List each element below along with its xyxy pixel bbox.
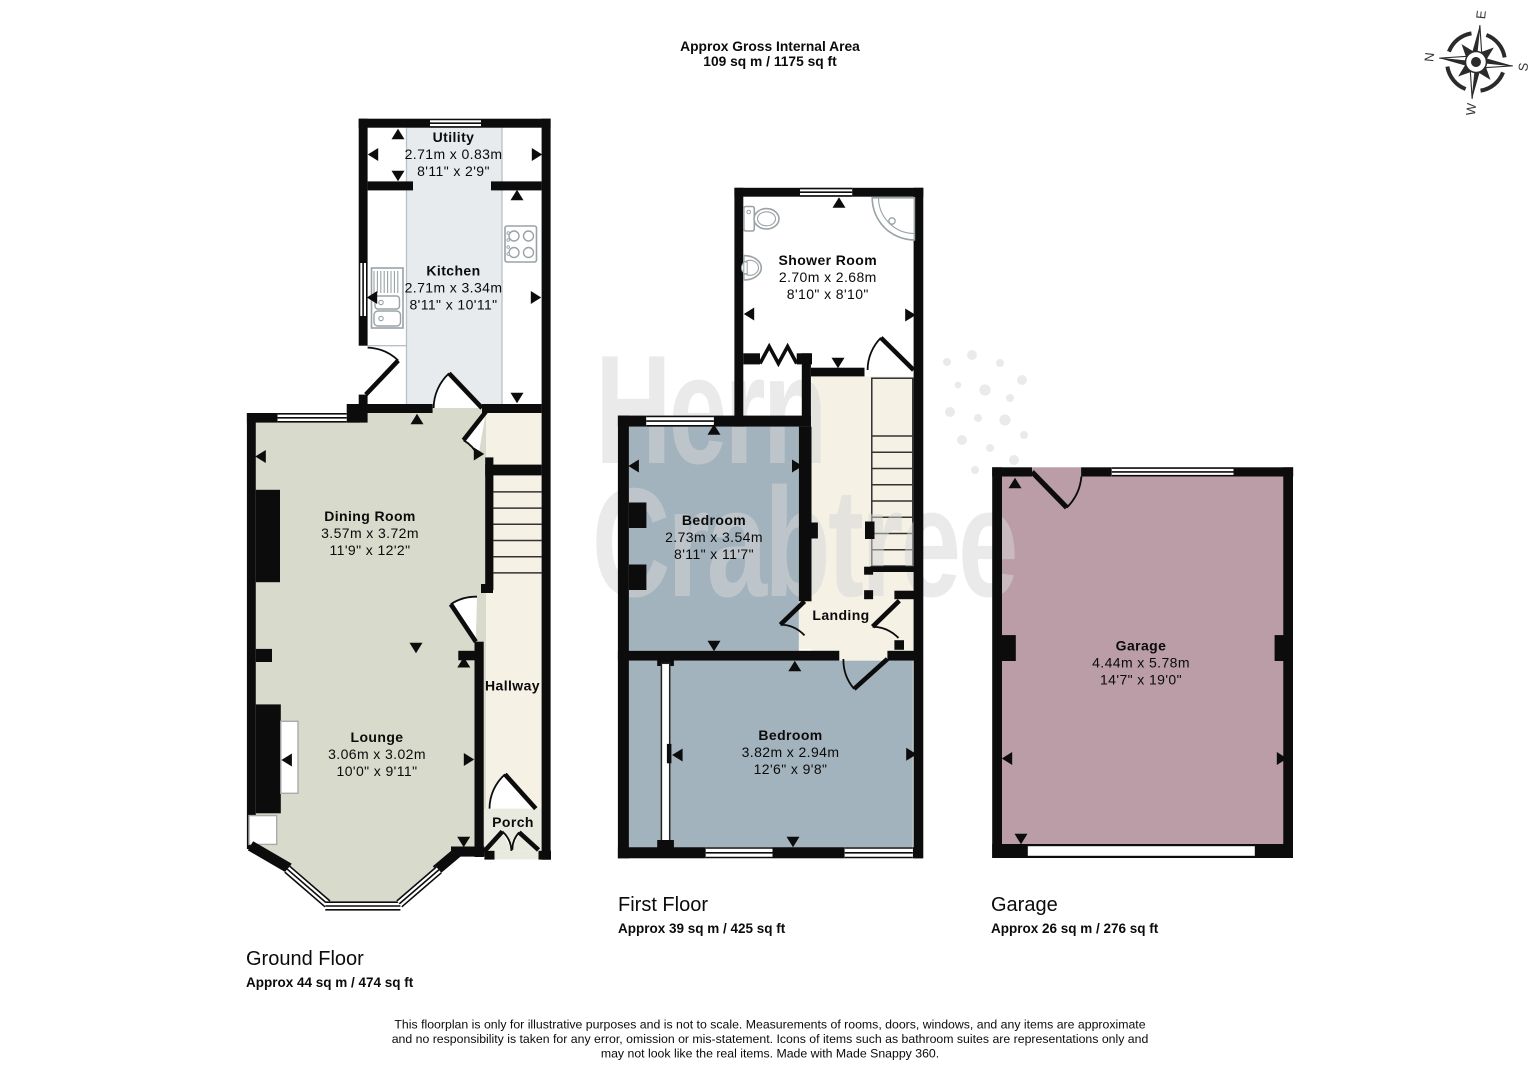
- svg-text:S: S: [1515, 62, 1531, 73]
- svg-text:8'11" x 11'7": 8'11" x 11'7": [674, 546, 754, 562]
- svg-text:8'10" x 8'10": 8'10" x 8'10": [787, 286, 869, 302]
- svg-text:and no responsibility is taken: and no responsibility is taken for any e…: [392, 1032, 1149, 1046]
- svg-text:N: N: [1421, 52, 1437, 63]
- svg-text:Shower Room: Shower Room: [779, 252, 878, 268]
- svg-text:Garage: Garage: [991, 894, 1058, 916]
- svg-text:3.06m x 3.02m: 3.06m x 3.02m: [328, 746, 426, 762]
- svg-text:Ground Floor: Ground Floor: [246, 948, 364, 970]
- svg-text:14'7" x 19'0": 14'7" x 19'0": [1100, 672, 1182, 688]
- svg-text:2.73m x 3.54m: 2.73m x 3.54m: [665, 529, 763, 545]
- svg-text:W: W: [1463, 102, 1479, 116]
- svg-text:3.57m x 3.72m: 3.57m x 3.72m: [321, 525, 419, 541]
- svg-text:2.70m x 2.68m: 2.70m x 2.68m: [779, 269, 877, 285]
- svg-text:Landing: Landing: [812, 607, 869, 623]
- svg-text:109 sq m / 1175 sq ft: 109 sq m / 1175 sq ft: [703, 54, 837, 69]
- svg-text:may not look like the real ite: may not look like the real items. Made w…: [601, 1047, 939, 1061]
- svg-text:This floorplan is only for ill: This floorplan is only for illustrative …: [394, 1018, 1145, 1032]
- svg-text:Bedroom: Bedroom: [758, 727, 822, 743]
- svg-text:11'9" x 12'2": 11'9" x 12'2": [330, 542, 411, 558]
- svg-text:Approx 26 sq m / 276 sq ft: Approx 26 sq m / 276 sq ft: [991, 921, 1159, 936]
- svg-text:Porch: Porch: [492, 814, 534, 830]
- svg-text:Approx 44 sq m / 474 sq ft: Approx 44 sq m / 474 sq ft: [246, 975, 414, 990]
- svg-text:Hallway: Hallway: [485, 678, 540, 694]
- svg-text:2.71m x 0.83m: 2.71m x 0.83m: [405, 146, 503, 162]
- svg-text:Kitchen: Kitchen: [426, 263, 480, 279]
- svg-text:Dining Room: Dining Room: [324, 508, 416, 524]
- svg-text:Approx 39 sq m / 425 sq ft: Approx 39 sq m / 425 sq ft: [618, 921, 786, 936]
- svg-text:8'11" x 10'11": 8'11" x 10'11": [409, 297, 497, 313]
- svg-text:3.82m x 2.94m: 3.82m x 2.94m: [742, 744, 840, 760]
- svg-text:Lounge: Lounge: [351, 729, 404, 745]
- svg-text:8'11" x 2'9": 8'11" x 2'9": [417, 163, 490, 179]
- svg-text:10'0" x 9'11": 10'0" x 9'11": [337, 763, 418, 779]
- svg-text:Bedroom: Bedroom: [682, 512, 746, 528]
- svg-text:12'6" x 9'8": 12'6" x 9'8": [754, 761, 828, 777]
- svg-text:2.71m x 3.34m: 2.71m x 3.34m: [405, 280, 503, 296]
- svg-text:Approx Gross Internal Area: Approx Gross Internal Area: [680, 39, 860, 54]
- svg-text:First Floor: First Floor: [618, 894, 708, 916]
- svg-text:Garage: Garage: [1116, 638, 1167, 654]
- svg-text:E: E: [1473, 9, 1489, 20]
- svg-text:Utility: Utility: [433, 129, 475, 145]
- svg-text:4.44m x 5.78m: 4.44m x 5.78m: [1092, 655, 1190, 671]
